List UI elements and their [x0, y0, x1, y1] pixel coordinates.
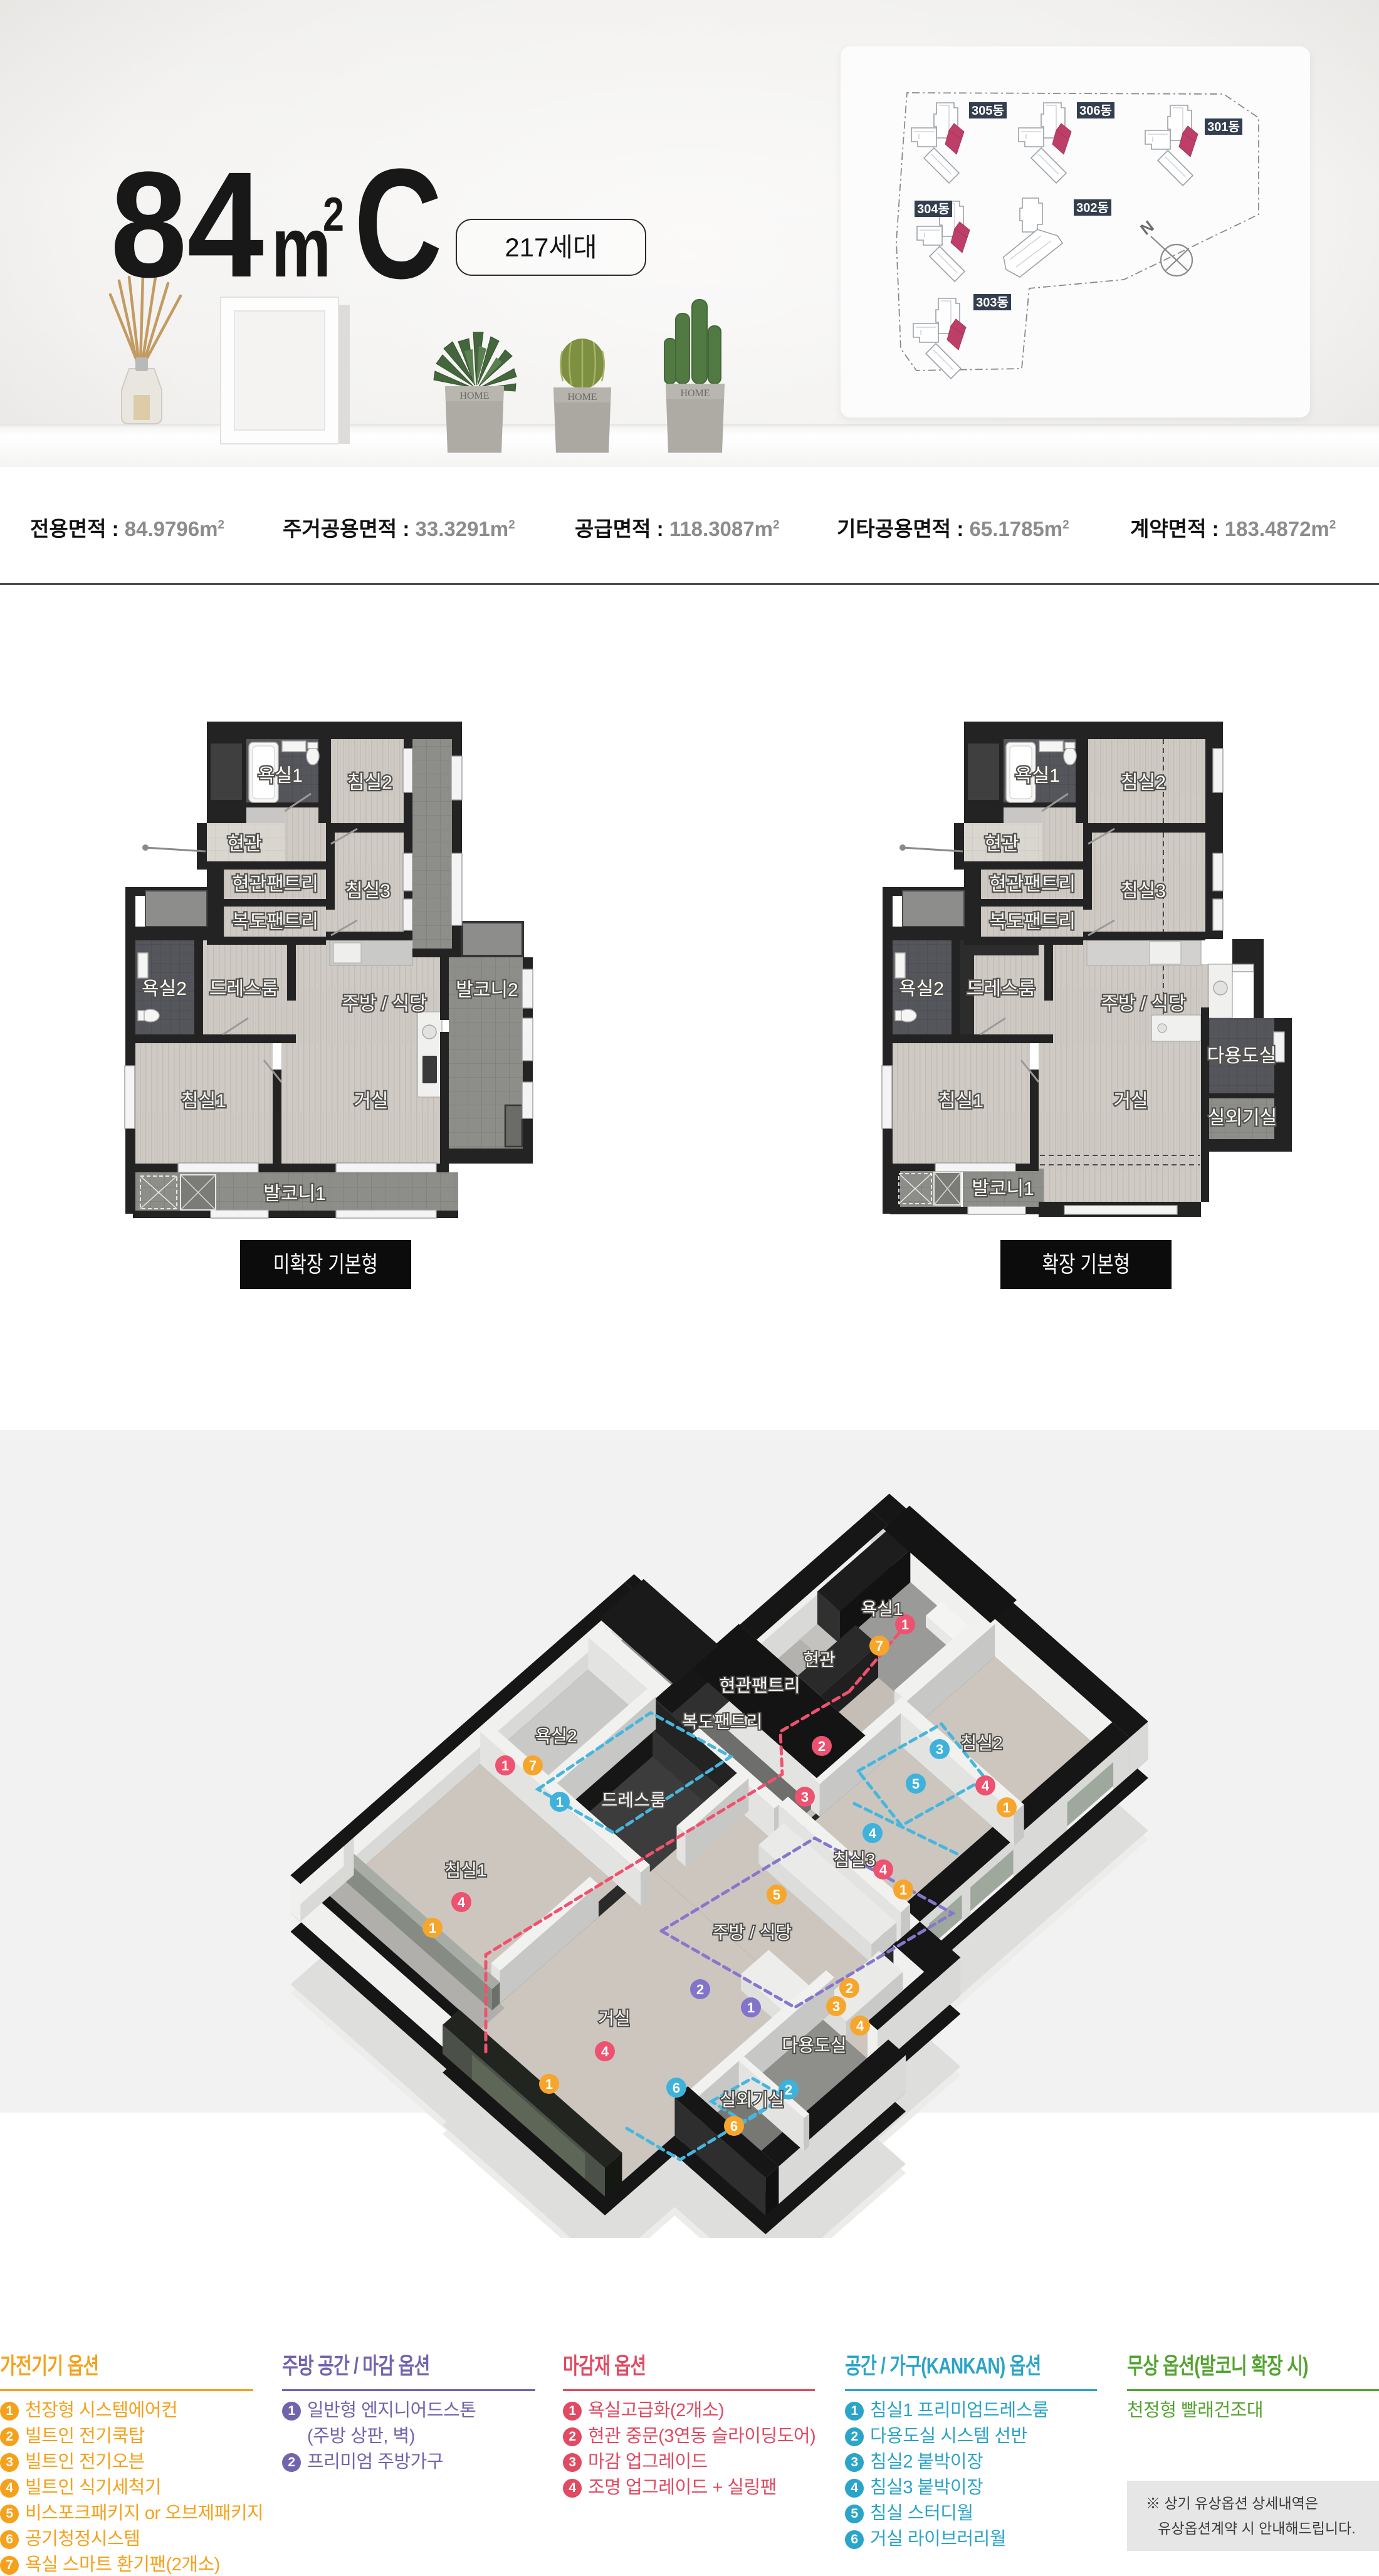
- svg-text:발코니1: 발코니1: [263, 1184, 326, 1204]
- svg-text:301동: 301동: [1207, 120, 1240, 134]
- svg-text:C: C: [354, 136, 443, 286]
- svg-text:욕실2: 욕실2: [142, 979, 187, 999]
- svg-text:침실3: 침실3: [345, 881, 391, 902]
- svg-text:발코니2: 발코니2: [456, 980, 518, 1001]
- svg-text:침실1: 침실1: [938, 1091, 983, 1112]
- svg-text:4: 4: [982, 1778, 990, 1794]
- svg-text:1: 1: [899, 1882, 907, 1898]
- svg-text:HOME: HOME: [567, 392, 597, 402]
- svg-text:5: 5: [773, 1887, 780, 1903]
- svg-text:실외기실: 실외기실: [1208, 1108, 1277, 1128]
- svg-text:2: 2: [818, 1738, 826, 1754]
- svg-text:침실1: 침실1: [444, 1861, 486, 1880]
- svg-text:6: 6: [730, 2118, 738, 2134]
- svg-text:3: 3: [801, 1789, 809, 1805]
- svg-text:복도팬트리: 복도팬트리: [682, 1712, 763, 1732]
- svg-text:욕실2: 욕실2: [899, 979, 944, 999]
- svg-text:4: 4: [458, 1895, 466, 1910]
- svg-text:2: 2: [696, 1982, 704, 1997]
- svg-text:4: 4: [869, 1826, 877, 1841]
- svg-text:침실3: 침실3: [833, 1850, 875, 1869]
- svg-text:5: 5: [912, 1776, 920, 1792]
- svg-text:드레스룸: 드레스룸: [967, 979, 1036, 999]
- svg-text:2: 2: [323, 188, 344, 241]
- svg-text:1: 1: [1003, 1800, 1010, 1816]
- svg-text:1: 1: [501, 1758, 509, 1774]
- svg-text:7: 7: [529, 1758, 537, 1774]
- svg-text:3: 3: [936, 1742, 943, 1757]
- svg-text:드레스룸: 드레스룸: [601, 1790, 666, 1810]
- svg-text:복도팬트리: 복도팬트리: [989, 912, 1076, 932]
- svg-text:침실3: 침실3: [1121, 881, 1166, 902]
- svg-text:침실1: 침실1: [181, 1091, 226, 1112]
- svg-text:N: N: [1136, 217, 1157, 239]
- svg-text:1: 1: [556, 1794, 564, 1810]
- svg-text:거실: 거실: [1113, 1091, 1148, 1112]
- svg-text:복도팬트리: 복도팬트리: [232, 912, 318, 932]
- svg-text:305동: 305동: [972, 104, 1004, 118]
- svg-text:1: 1: [545, 2076, 553, 2092]
- svg-text:7: 7: [876, 1638, 883, 1654]
- svg-text:m: m: [271, 199, 331, 286]
- svg-text:HOME: HOME: [680, 388, 710, 399]
- svg-text:거실: 거실: [598, 2009, 631, 2028]
- svg-text:침실2: 침실2: [960, 1733, 1002, 1753]
- svg-text:주방 / 식당: 주방 / 식당: [342, 994, 426, 1014]
- svg-text:3: 3: [832, 1999, 840, 2014]
- svg-text:욕실1: 욕실1: [258, 765, 303, 786]
- svg-text:욕실1: 욕실1: [1015, 765, 1060, 786]
- svg-text:1: 1: [429, 1920, 436, 1936]
- svg-text:현관팬트리: 현관팬트리: [720, 1676, 800, 1695]
- svg-text:발코니1: 발코니1: [972, 1179, 1034, 1199]
- svg-text:주방 / 식당: 주방 / 식당: [1101, 994, 1185, 1014]
- svg-text:2: 2: [785, 2082, 792, 2098]
- svg-text:1: 1: [901, 1617, 909, 1632]
- svg-text:2: 2: [846, 1980, 853, 1996]
- svg-text:4: 4: [601, 2044, 609, 2059]
- svg-text:1: 1: [747, 2000, 755, 2016]
- svg-text:거실: 거실: [354, 1091, 388, 1112]
- svg-text:6: 6: [673, 2080, 680, 2096]
- svg-text:침실2: 침실2: [1121, 772, 1166, 793]
- svg-text:4: 4: [879, 1862, 888, 1878]
- svg-text:302동: 302동: [1076, 201, 1109, 215]
- svg-text:드레스룸: 드레스룸: [209, 979, 278, 999]
- svg-text:HOME: HOME: [459, 391, 489, 401]
- svg-text:다용도실: 다용도실: [782, 2036, 846, 2055]
- svg-text:306동: 306동: [1079, 104, 1112, 118]
- svg-text:실외기실: 실외기실: [720, 2090, 784, 2110]
- svg-text:현관팬트리: 현관팬트리: [989, 874, 1076, 895]
- svg-text:304동: 304동: [917, 202, 950, 216]
- svg-text:84: 84: [110, 140, 264, 286]
- svg-text:4: 4: [856, 2018, 864, 2034]
- svg-text:침실2: 침실2: [347, 772, 392, 793]
- svg-text:현관팬트리: 현관팬트리: [232, 874, 318, 895]
- svg-text:주방 / 식당: 주방 / 식당: [713, 1923, 792, 1942]
- svg-text:현관: 현관: [227, 834, 261, 854]
- svg-text:욕실2: 욕실2: [535, 1727, 577, 1746]
- svg-text:욕실1: 욕실1: [861, 1599, 903, 1619]
- svg-text:다용도실: 다용도실: [1207, 1046, 1276, 1066]
- svg-text:303동: 303동: [976, 296, 1009, 310]
- svg-text:현관: 현관: [984, 834, 1019, 854]
- svg-text:현관: 현관: [803, 1650, 836, 1669]
